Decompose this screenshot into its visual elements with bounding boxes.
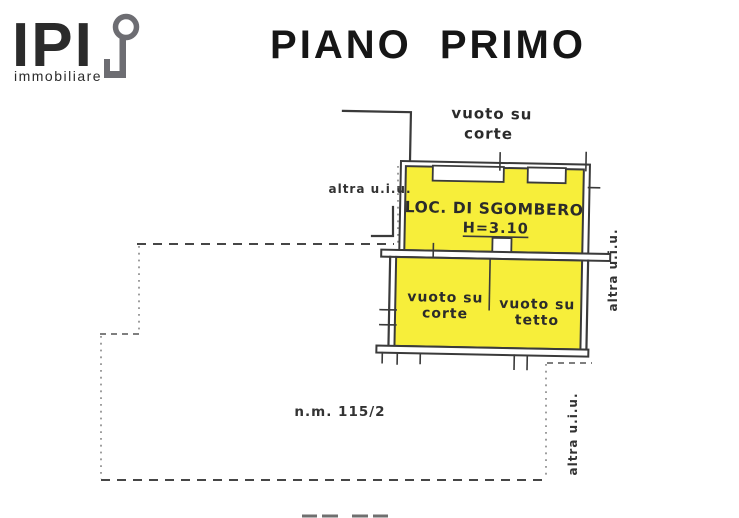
- label-vuoto-corte-top-line1: vuoto su: [451, 104, 532, 124]
- key-tooth-side: [104, 59, 110, 71]
- label-parcel-number: n.m. 115/2: [294, 404, 385, 420]
- label-vuoto-tetto-line2: tetto: [515, 312, 560, 329]
- label-room-name: LOC. DI SGOMBERO: [405, 198, 584, 219]
- label-vuoto-corte-top-line2: corte: [464, 124, 513, 143]
- floorplan-page: IPI immobiliare PIANO PRIMO vuoto su cor…: [0, 0, 739, 518]
- plan-title: PIANO PRIMO: [270, 23, 586, 67]
- void-divider-line: [489, 260, 490, 310]
- label-altra-uiu-right-lower: altra u.i.u.: [566, 392, 580, 475]
- label-vuoto-corte-line1: vuoto su: [407, 289, 483, 306]
- adjacent-unit-corner: [372, 207, 393, 236]
- key-tooth-bottom: [104, 71, 120, 78]
- void-block-right-wall: [586, 261, 588, 350]
- label-vuoto-corte-line2: corte: [422, 305, 468, 322]
- label-vuoto-tetto-line1: vuoto su: [499, 296, 575, 313]
- label-altra-uiu-left: altra u.i.u.: [328, 182, 411, 196]
- void-block-left-wall: [388, 257, 390, 346]
- logo-subtitle: immobiliare: [14, 68, 102, 84]
- courtyard-outline: [342, 111, 411, 161]
- label-altra-uiu-right-upper: altra u.i.u.: [606, 228, 620, 311]
- key-ring: [116, 17, 137, 38]
- logo: IPI immobiliare: [12, 11, 137, 84]
- window-opening-2: [528, 167, 566, 183]
- key-stem: [120, 37, 127, 78]
- key-icon: [104, 17, 137, 79]
- label-room-height: H=3.10: [463, 220, 529, 237]
- window-opening-1: [433, 166, 504, 182]
- floorplan-drawing: IPI immobiliare PIANO PRIMO vuoto su cor…: [0, 0, 739, 518]
